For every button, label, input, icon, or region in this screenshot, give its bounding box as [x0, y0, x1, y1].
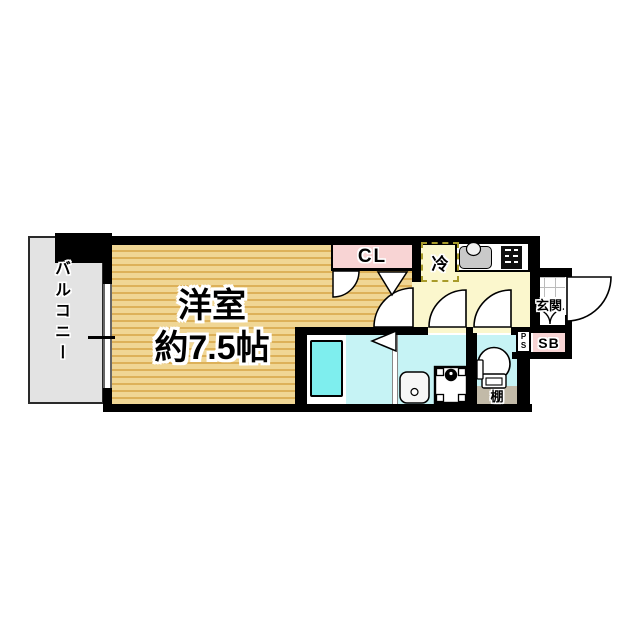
pipe-space-label: P S — [521, 333, 526, 350]
closet-cl: CL — [331, 245, 412, 271]
balcony-label: バルコニー — [48, 260, 72, 365]
wall-genkan-bottom — [530, 325, 572, 333]
entrance-label: 玄関 — [533, 295, 565, 314]
fridge-label: 冷 — [432, 250, 449, 275]
wall-kitchen-right — [530, 236, 540, 333]
entrance-door-arc — [567, 277, 611, 321]
shoebox-label: SB — [538, 335, 559, 351]
shoebox-sb: SB — [533, 333, 565, 352]
bathroom-floor-cyan — [346, 335, 392, 404]
wall-room-right — [412, 236, 421, 282]
stove — [501, 246, 522, 269]
wall-genkan-top — [530, 268, 572, 277]
shelf-label: 棚 — [490, 386, 503, 405]
fridge-space: 冷 — [421, 242, 459, 282]
shelf: 棚 — [477, 386, 517, 404]
washroom-floor — [398, 335, 466, 404]
kitchen-sink — [459, 246, 492, 269]
bath-sliding-door — [392, 335, 398, 404]
wall-washroom-toilet — [466, 333, 477, 412]
pipe-space-ps: P S — [516, 330, 531, 353]
wall-left-upper — [103, 236, 112, 284]
closet-label: CL — [358, 246, 387, 268]
floor-plan: CL 棚 SB P S 冷 — [0, 0, 640, 640]
room-label-line2: 約7.5帖 — [102, 320, 322, 369]
